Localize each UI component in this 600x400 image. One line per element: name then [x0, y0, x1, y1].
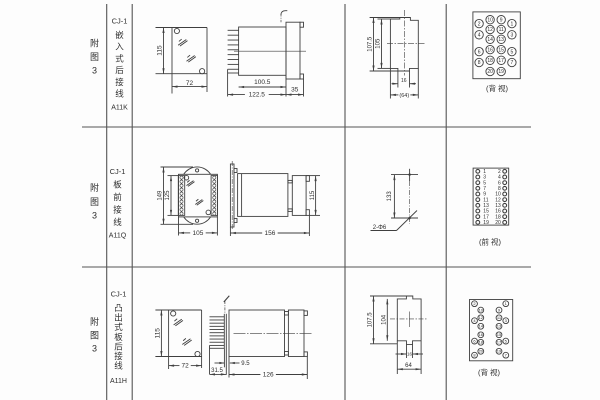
svg-text:10: 10	[479, 308, 484, 313]
svg-text:(64): (64)	[399, 93, 409, 99]
svg-text:17: 17	[498, 58, 504, 64]
svg-text:156: 156	[264, 230, 275, 237]
svg-text:CJ-1: CJ-1	[112, 17, 128, 26]
svg-text:13: 13	[498, 37, 504, 43]
svg-text:14: 14	[479, 324, 484, 329]
svg-text:(背 视): (背 视)	[478, 367, 501, 377]
svg-text:14: 14	[487, 37, 493, 43]
svg-text:附: 附	[90, 38, 99, 49]
svg-text:35: 35	[291, 87, 299, 94]
svg-text:10: 10	[487, 17, 493, 23]
svg-text:20: 20	[487, 69, 493, 75]
svg-text:接: 接	[115, 77, 124, 87]
svg-text:126: 126	[263, 372, 274, 379]
svg-text:16: 16	[487, 47, 493, 53]
svg-text:17: 17	[497, 340, 502, 345]
svg-text:72: 72	[186, 80, 194, 87]
svg-text:A11K: A11K	[111, 105, 128, 112]
svg-text:凸: 凸	[114, 303, 123, 313]
svg-text:前: 前	[113, 192, 122, 202]
svg-text:线: 线	[114, 361, 123, 371]
svg-text:5: 5	[511, 49, 514, 55]
svg-text:149: 149	[158, 190, 164, 201]
svg-text:18: 18	[487, 58, 493, 64]
svg-text:接: 接	[114, 351, 123, 361]
svg-text:107.5: 107.5	[368, 36, 374, 52]
svg-text:115: 115	[157, 45, 164, 56]
svg-text:19: 19	[497, 349, 502, 354]
svg-text:线: 线	[115, 89, 124, 99]
svg-text:6: 6	[478, 49, 481, 55]
svg-text:100.5: 100.5	[254, 79, 271, 86]
svg-text:CJ-1: CJ-1	[110, 167, 126, 176]
svg-text:9: 9	[500, 17, 503, 23]
svg-text:15: 15	[497, 332, 502, 337]
svg-text:线: 线	[113, 217, 122, 227]
svg-text:11: 11	[499, 27, 504, 33]
svg-text:图: 图	[90, 331, 99, 341]
svg-text:3: 3	[511, 33, 514, 39]
svg-text:19: 19	[498, 69, 504, 75]
svg-text:板: 板	[114, 332, 123, 342]
svg-text:板: 板	[113, 180, 122, 190]
svg-text:18: 18	[479, 340, 484, 345]
svg-text:7: 7	[511, 60, 514, 66]
svg-text:2-Φ6: 2-Φ6	[373, 225, 387, 231]
svg-text:3: 3	[92, 65, 97, 75]
svg-text:125: 125	[165, 190, 171, 201]
svg-text:A11Q: A11Q	[109, 233, 127, 240]
svg-text:72: 72	[181, 363, 189, 370]
svg-text:12: 12	[479, 315, 484, 320]
svg-text:A11H: A11H	[110, 378, 127, 385]
svg-text:115: 115	[310, 190, 316, 200]
svg-text:式: 式	[115, 53, 124, 63]
svg-text:式: 式	[114, 322, 123, 332]
svg-text:16: 16	[479, 332, 484, 337]
svg-text:20: 20	[479, 349, 484, 354]
svg-text:(背 视): (背 视)	[486, 83, 509, 93]
svg-text:107.5: 107.5	[368, 312, 374, 328]
svg-text:后: 后	[114, 341, 123, 351]
svg-text:133: 133	[387, 191, 393, 202]
svg-text:16: 16	[401, 78, 407, 84]
svg-text:出: 出	[114, 313, 123, 323]
svg-text:12: 12	[487, 27, 493, 33]
svg-text:8: 8	[478, 60, 481, 66]
svg-text:3: 3	[92, 344, 97, 354]
svg-text:115: 115	[155, 328, 162, 339]
svg-text:后: 后	[115, 65, 124, 75]
svg-text:3: 3	[92, 211, 97, 221]
svg-text:图: 图	[90, 52, 99, 62]
svg-text:(前 视): (前 视)	[479, 236, 502, 246]
svg-text:31.5: 31.5	[211, 368, 223, 374]
svg-text:104: 104	[382, 314, 388, 325]
svg-text:15: 15	[498, 47, 504, 53]
svg-text:附: 附	[90, 182, 99, 193]
svg-text:64: 64	[405, 363, 412, 369]
svg-text:CJ-1: CJ-1	[111, 289, 127, 298]
svg-text:122.5: 122.5	[249, 92, 266, 99]
svg-text:入: 入	[115, 42, 124, 52]
svg-text:105: 105	[193, 230, 204, 237]
svg-text:嵌: 嵌	[115, 30, 124, 40]
svg-text:19: 19	[483, 220, 489, 226]
svg-text:图: 图	[90, 197, 99, 207]
svg-text:16: 16	[407, 351, 413, 356]
svg-text:20: 20	[495, 220, 501, 226]
svg-text:接: 接	[113, 205, 122, 215]
svg-text:2: 2	[478, 21, 481, 27]
svg-text:1: 1	[511, 21, 514, 27]
svg-text:4: 4	[478, 33, 481, 39]
svg-text:13: 13	[497, 324, 502, 329]
svg-text:105: 105	[376, 38, 382, 49]
svg-text:附: 附	[90, 316, 99, 327]
svg-text:9.5: 9.5	[241, 361, 250, 367]
